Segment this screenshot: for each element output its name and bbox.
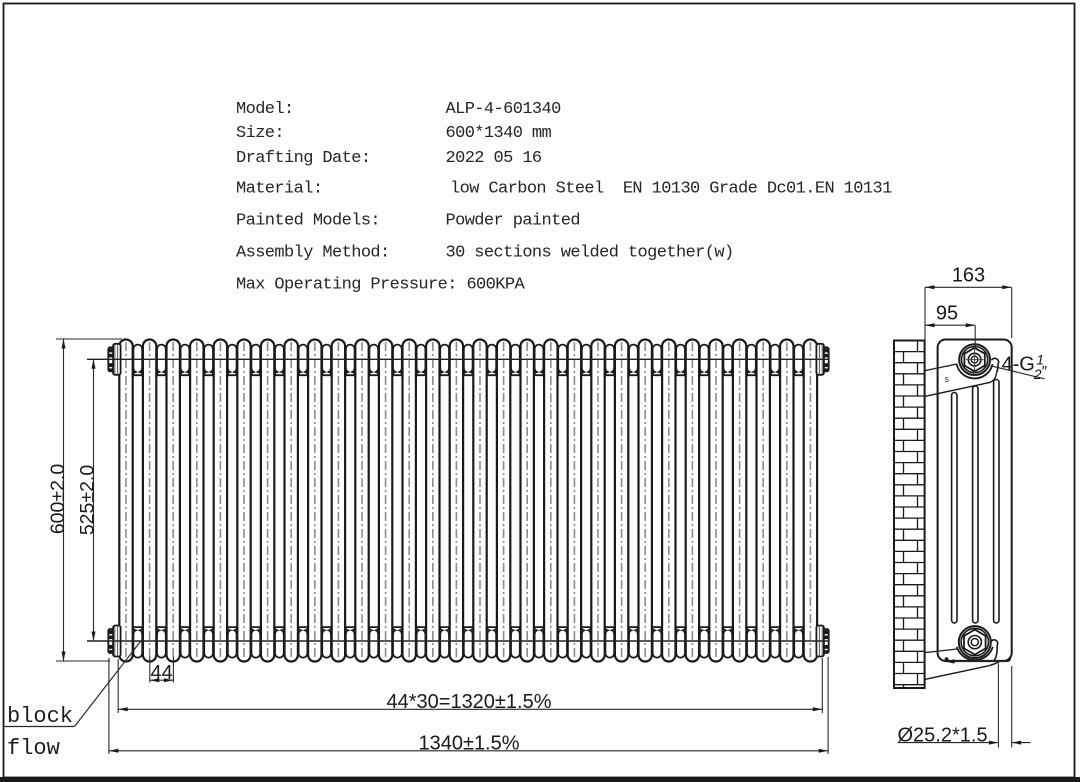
svg-text:low Carbon Steel EN 10130 Gra: low Carbon Steel EN 10130 Grade Dc01.EN … [450,180,892,199]
svg-text:163: 163 [952,264,985,286]
svg-text:Assembly Method:: Assembly Method: [236,244,390,263]
svg-text:95: 95 [936,302,958,324]
svg-text:Model:: Model: [236,100,294,119]
svg-text:2022 05 16: 2022 05 16 [446,149,542,168]
svg-text:Powder painted: Powder painted [446,212,580,231]
svg-text:1340±1.5%: 1340±1.5% [418,733,519,755]
svg-text:Ø25.2*1.5: Ø25.2*1.5 [898,724,988,746]
svg-text:block: block [7,704,73,729]
svg-text:s: s [944,375,949,385]
svg-text:flow: flow [7,736,60,761]
svg-text:Painted Models:: Painted Models: [236,212,380,231]
svg-text:44*30=1320±1.5%: 44*30=1320±1.5% [386,691,551,713]
svg-text:Max Operating Pressure: 600KPA: Max Operating Pressure: 600KPA [236,276,525,295]
svg-text:Size:: Size: [236,124,284,143]
svg-text:2: 2 [1033,366,1042,382]
svg-text:Drafting Date:: Drafting Date: [236,149,370,168]
svg-text:600±2.0: 600±2.0 [47,464,69,534]
svg-text:″: ″ [1042,363,1048,380]
svg-text:Material:: Material: [236,180,322,199]
svg-text:600*1340 mm: 600*1340 mm [446,124,552,143]
svg-text:525±2.0: 525±2.0 [77,465,99,535]
svg-text:44: 44 [150,662,172,684]
svg-text:30 sections welded together(w): 30 sections welded together(w) [446,244,734,263]
svg-text:4-G: 4-G [1002,354,1035,376]
svg-text:ALP-4-601340: ALP-4-601340 [446,100,562,119]
